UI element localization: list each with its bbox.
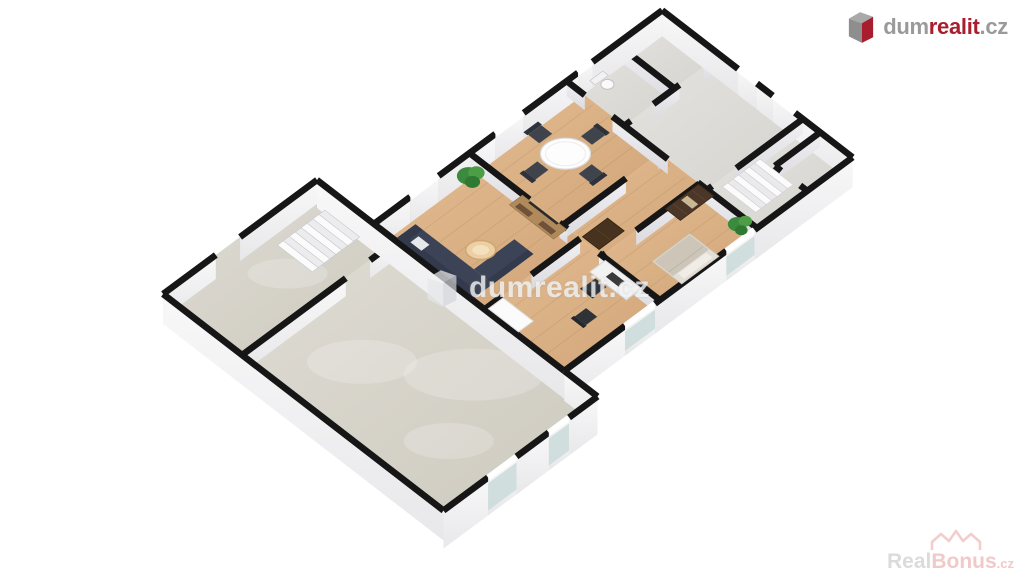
logo-part-cz: .cz (980, 14, 1008, 39)
logo-part-realit: realit (929, 14, 980, 39)
dumrealit-logo: dumrealit.cz (847, 10, 1008, 44)
logo-part-dum: dum (883, 14, 929, 39)
dumrealit-logo-text: dumrealit.cz (883, 10, 1008, 44)
floorplan-stage: dumrealit.cz dumrealit.cz RealBonus.cz (0, 0, 1024, 576)
coffee-table (466, 241, 496, 260)
dumrealit-logo-icon (847, 10, 875, 44)
floorplan-3d (0, 0, 1024, 576)
